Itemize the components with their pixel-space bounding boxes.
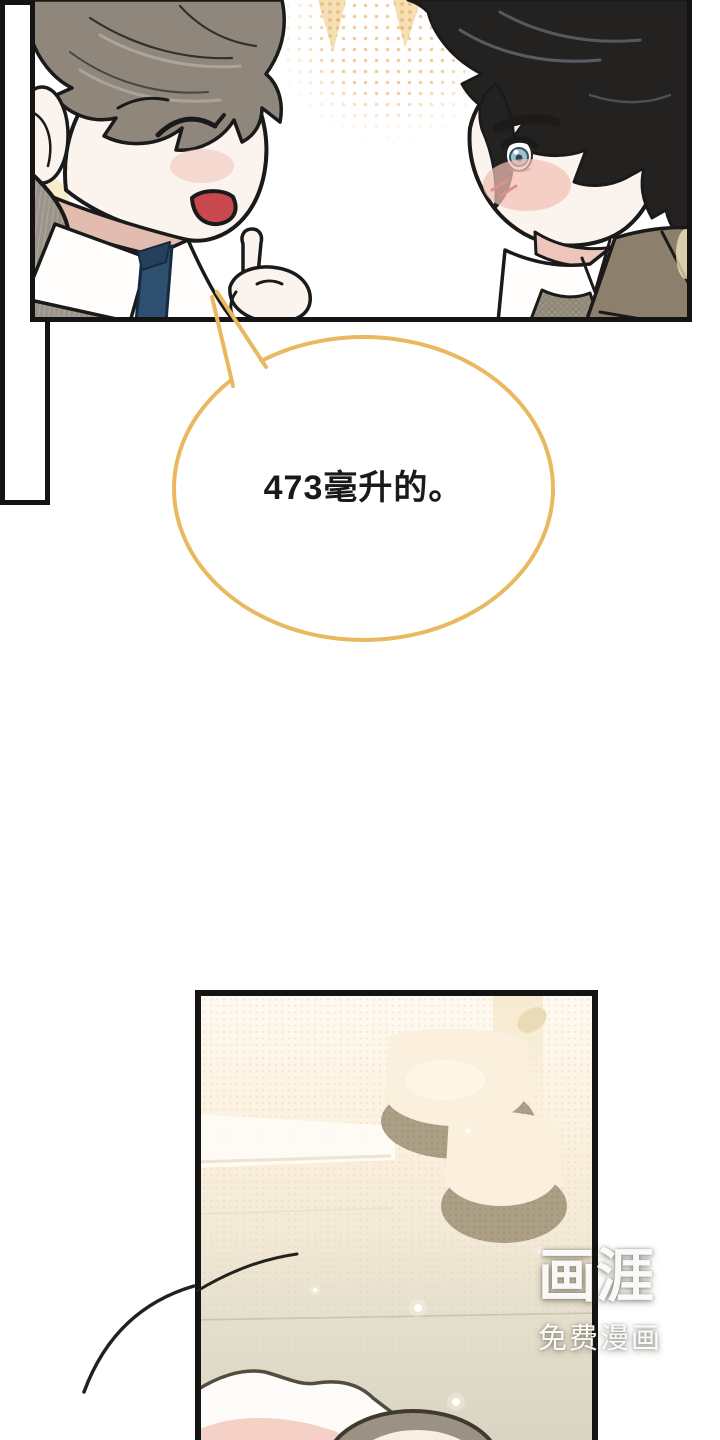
- character-right: [408, 0, 692, 322]
- top-panel-illustration: [30, 0, 692, 322]
- bottom-panel-illustration: [195, 990, 598, 1440]
- comic-page: 473毫升的。: [0, 0, 720, 1440]
- cup-2: [441, 1111, 567, 1243]
- speech-bubble-text: 473毫升的。: [264, 468, 464, 509]
- ear-left: [30, 87, 68, 183]
- speech-bubble: 473毫升的。: [172, 335, 555, 642]
- panel-bottom-scene: [195, 990, 598, 1440]
- pointing-hand: [230, 229, 310, 322]
- character-left: [30, 0, 310, 322]
- blush-right: [483, 159, 571, 211]
- shelf-scene: [195, 990, 598, 1440]
- watermark: 画涯 免费漫画: [538, 1248, 662, 1357]
- mouth-left: [192, 191, 236, 224]
- watermark-logo: 画涯: [538, 1248, 662, 1306]
- blush-left: [170, 149, 234, 183]
- panel-top-characters: [30, 0, 692, 322]
- watermark-subtitle: 免费漫画: [538, 1315, 662, 1357]
- tie: [136, 242, 172, 322]
